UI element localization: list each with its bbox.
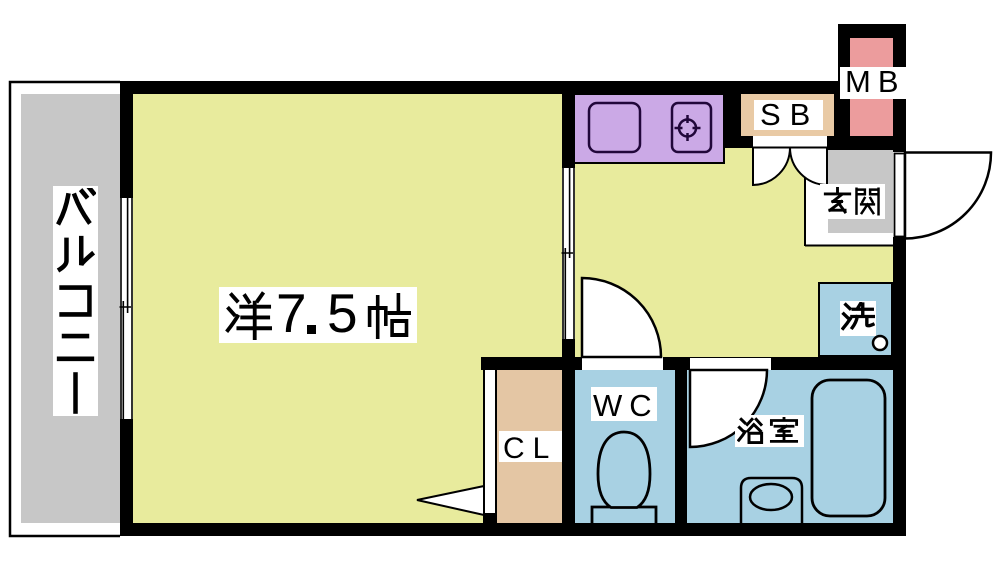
svg-text:5: 5 [327, 282, 358, 344]
svg-text:MB: MB [845, 64, 906, 99]
svg-text:WC: WC [593, 388, 659, 423]
svg-text:SB: SB [760, 97, 819, 132]
svg-text:CL: CL [503, 432, 557, 465]
svg-text:7: 7 [276, 282, 307, 344]
